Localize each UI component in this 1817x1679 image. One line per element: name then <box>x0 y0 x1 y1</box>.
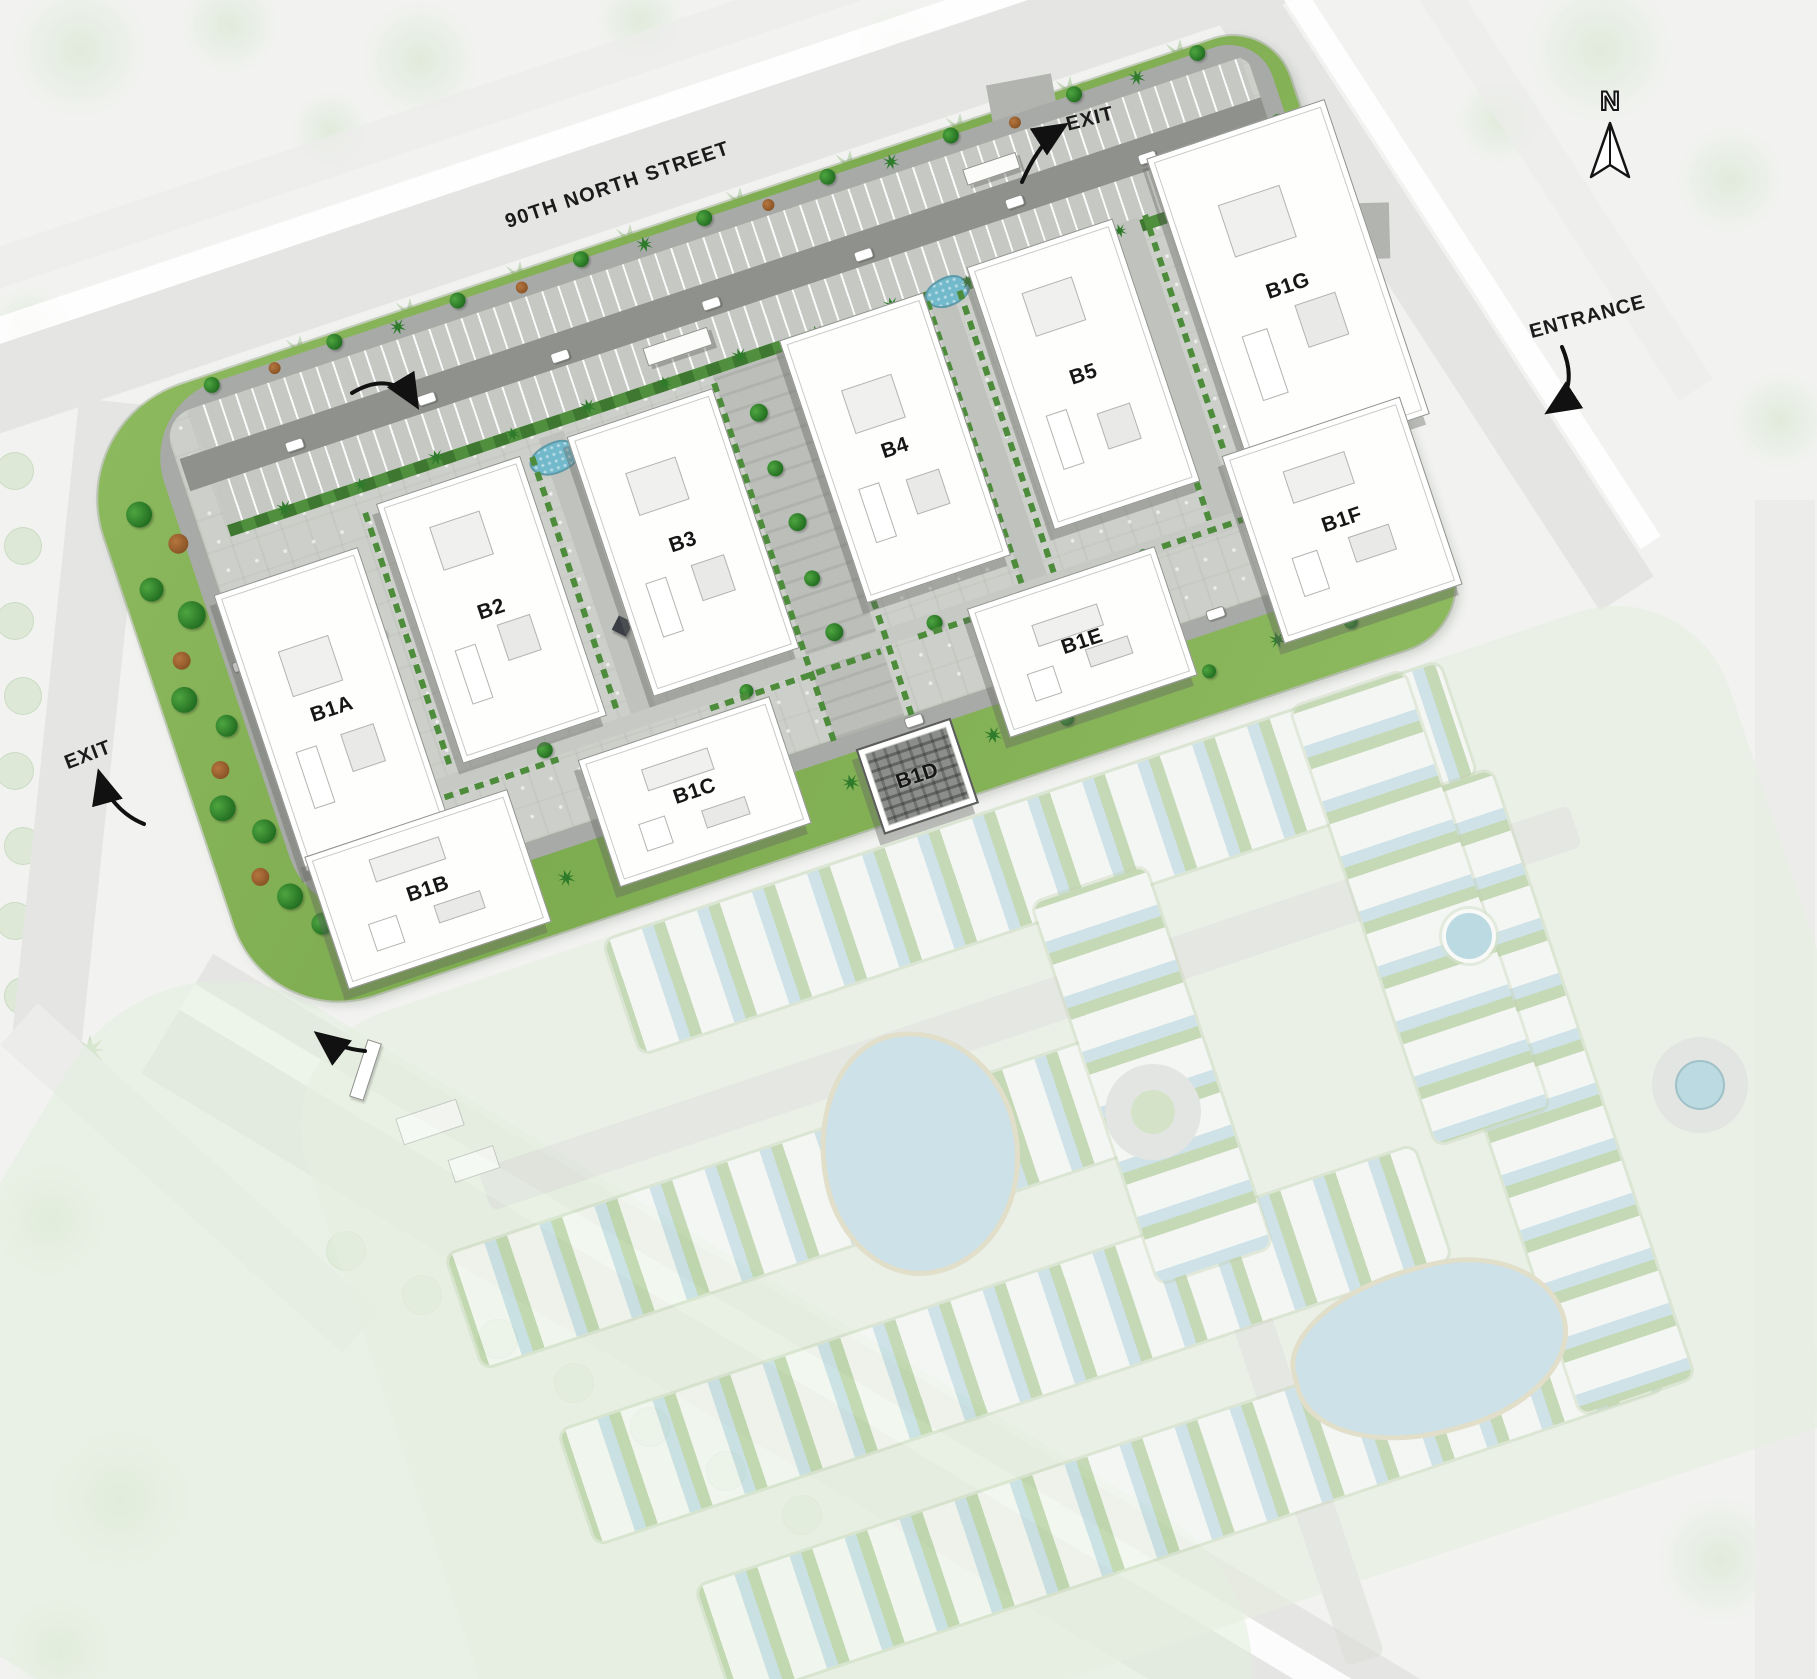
roof-detail <box>638 816 674 852</box>
roof-detail <box>296 745 335 809</box>
tree-deco <box>136 574 166 604</box>
building-label: B1G <box>1263 268 1313 305</box>
star-deco <box>881 152 901 172</box>
car-deco <box>853 247 875 263</box>
tree-deco <box>168 683 201 716</box>
compass-arrow-icon <box>1587 119 1633 183</box>
tree-deco <box>1064 84 1084 104</box>
building-label: B2 <box>474 594 508 626</box>
star-deco <box>982 724 1004 746</box>
star-deco <box>1127 67 1147 87</box>
shrub-deco <box>170 649 193 672</box>
compass-n-label: N <box>1578 86 1642 117</box>
car-deco <box>284 437 306 453</box>
roof-detail <box>497 614 542 661</box>
building-label: B1D <box>893 758 942 795</box>
shrub-deco <box>166 531 191 556</box>
tree-deco <box>817 167 837 187</box>
roof-detail <box>455 644 493 704</box>
tree-deco <box>249 816 279 846</box>
tree-deco <box>1200 662 1218 680</box>
north-compass: N <box>1578 86 1642 183</box>
car-deco <box>416 391 438 407</box>
roof-detail <box>1218 185 1297 258</box>
tree-deco <box>206 792 239 825</box>
building-label: B5 <box>1066 358 1100 390</box>
star-deco <box>352 476 370 494</box>
roundabout-pond <box>1652 1037 1748 1133</box>
star-deco <box>840 772 862 794</box>
site-plan-canvas: B2 B3 B4 B5 B1G B1A B1B B1C B1D B1E B1F … <box>0 0 1817 1679</box>
star-deco <box>656 374 674 392</box>
car-deco <box>1004 194 1026 210</box>
tree-deco <box>123 498 156 531</box>
star-deco <box>556 867 578 889</box>
shrub-deco <box>209 759 232 782</box>
roof-detail <box>841 374 906 434</box>
tree-deco <box>1187 43 1207 63</box>
shrub-deco <box>267 360 282 375</box>
car-deco <box>1205 605 1227 621</box>
tree-deco <box>786 511 809 534</box>
roof-detail <box>1046 409 1085 470</box>
shrub-deco <box>514 280 529 295</box>
tree-deco <box>747 401 770 424</box>
building-label: B4 <box>878 432 912 464</box>
roof-detail <box>858 482 896 543</box>
star-deco <box>274 498 294 518</box>
roof-detail <box>691 554 736 601</box>
star-deco <box>730 346 750 366</box>
tree-deco <box>571 249 591 269</box>
roof-detail <box>1027 666 1062 702</box>
tree-deco <box>823 621 846 644</box>
roof-detail <box>1242 328 1288 401</box>
star-deco <box>634 234 654 254</box>
pond <box>1442 909 1496 963</box>
tree-deco <box>765 458 785 478</box>
shrub-deco <box>1007 115 1022 130</box>
roof-detail <box>429 511 494 571</box>
shrub-deco <box>761 197 776 212</box>
roof-detail <box>646 577 685 637</box>
tree-deco <box>174 597 209 632</box>
roof-detail <box>701 796 751 829</box>
roundabout <box>1105 1064 1201 1160</box>
tree-deco <box>274 880 307 913</box>
roof-detail <box>1348 523 1397 563</box>
tree-deco <box>213 712 241 740</box>
tree-deco <box>941 125 961 145</box>
roof-detail <box>278 634 344 697</box>
roof-detail <box>1021 277 1086 338</box>
roof-detail <box>1096 402 1142 449</box>
tree-deco <box>324 332 344 352</box>
star-deco <box>426 447 446 467</box>
star-deco <box>504 425 522 443</box>
roof-detail <box>368 915 405 952</box>
roof-detail <box>340 723 386 772</box>
roof-detail <box>1292 549 1330 596</box>
star-deco <box>578 396 598 416</box>
car-deco <box>549 348 571 364</box>
roof-detail <box>625 456 690 516</box>
tree-deco <box>694 208 714 228</box>
building-label: B3 <box>666 527 700 559</box>
tree-deco <box>802 568 822 588</box>
shrub-deco <box>249 866 272 889</box>
tree-deco <box>202 375 222 395</box>
roof-detail <box>1294 291 1349 347</box>
tree-deco <box>448 290 468 310</box>
roof-detail <box>1283 451 1355 503</box>
roof-detail <box>905 468 950 515</box>
building-label: B1A <box>307 691 356 728</box>
star-deco <box>388 317 408 337</box>
car-deco <box>700 295 722 311</box>
